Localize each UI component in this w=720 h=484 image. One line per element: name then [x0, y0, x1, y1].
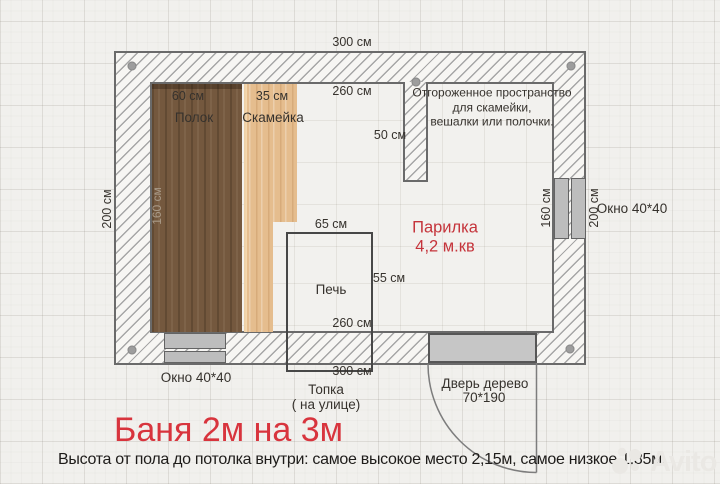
bench-skameika-wide — [244, 84, 297, 222]
fastener-dot — [128, 62, 137, 71]
page-title: Баня 2м на 3м — [114, 413, 343, 447]
room-name-label: Парилка — [412, 219, 478, 238]
fastener-dot — [566, 345, 575, 354]
door-label-line2: 70*190 — [463, 390, 506, 406]
niche-note-line2: для скамейки, — [412, 100, 571, 115]
floor-plan: 300 см 260 см 200 см 60 см 160 см 35 см … — [0, 0, 720, 484]
fastener-dot — [567, 62, 576, 71]
window-right-inner-pane — [571, 178, 586, 239]
bench-label: Скамейка — [242, 110, 304, 126]
dim-bench-width: 35 см — [256, 89, 288, 103]
dim-polok-length: 160 см — [151, 187, 165, 225]
dim-polok-width: 60 см — [172, 89, 204, 103]
dim-stove-width: 65 см — [315, 217, 347, 231]
polok-label: Полок — [175, 110, 213, 126]
dim-partition-depth: 50 см — [374, 128, 406, 142]
niche-note-line3: вешалки или полочки. — [412, 114, 571, 129]
window-right-outer-pane — [554, 178, 569, 239]
bench-skameika-narrow — [244, 222, 273, 332]
dim-outer-width-bottom: 300 см — [332, 364, 371, 378]
dim-outer-height-left: 200 см — [100, 189, 114, 228]
dim-outer-width-top: 300 см — [332, 35, 371, 49]
stove-outline — [286, 232, 373, 372]
furnace-label-line1: Топка — [308, 382, 344, 398]
niche-note: Отгороженное пространство для скамейки, … — [412, 85, 571, 129]
window-bottom-label: Окно 40*40 — [161, 370, 231, 386]
niche-note-line1: Отгороженное пространство — [412, 85, 571, 100]
avito-logo-icon — [611, 445, 647, 479]
fastener-dot — [128, 346, 137, 355]
stove-label: Печь — [316, 282, 347, 298]
window-bottom-inner-pane — [164, 333, 226, 349]
door-opening — [428, 333, 537, 363]
dim-inner-width-top: 260 см — [332, 84, 371, 98]
footnote: Высота от пола до потолка внутри: самое … — [58, 450, 666, 469]
watermark: Avito — [611, 445, 716, 479]
window-right-label: Окно 40*40 — [597, 201, 667, 217]
window-bottom-outer-pane — [164, 351, 226, 363]
watermark-text: Avito — [650, 445, 716, 479]
dim-inner-width-bottom: 260 см — [332, 316, 371, 330]
dim-window-right-inner-offset: 160 см — [539, 188, 553, 227]
dim-stove-depth: 55 см — [373, 271, 405, 285]
room-area-label: 4,2 м.кв — [415, 238, 474, 257]
